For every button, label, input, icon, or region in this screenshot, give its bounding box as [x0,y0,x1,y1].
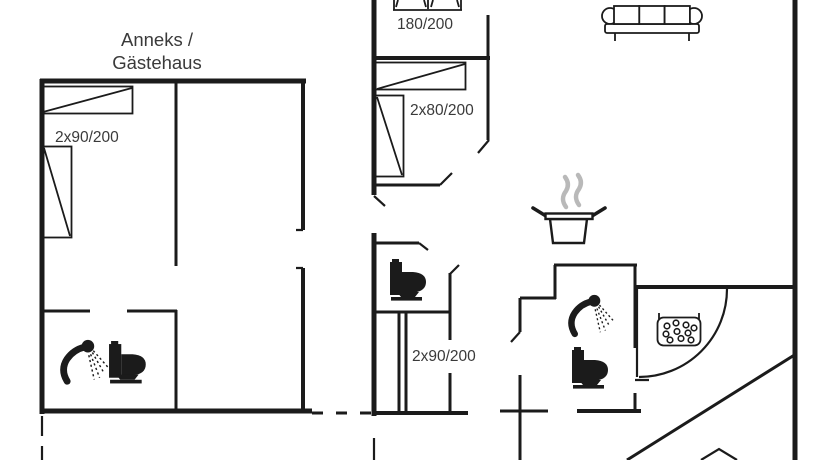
bed-size-label-twin: 2x80/200 [410,102,474,119]
bed-size-label-middle: 2x90/200 [412,348,476,365]
cooking-pot-icon [533,175,605,243]
shower-icon [64,340,108,381]
main-door-jambs [374,140,649,380]
chevron-shape [701,449,737,460]
toilet-icon [390,259,426,301]
bed-symbol [393,0,462,10]
bed-size-label-double: 180/200 [397,16,453,33]
floor-plan-drawing: Anneks / Gästehaus 2x90/200 180/200 2x80… [0,0,834,460]
annex-title-line1: Anneks / [121,29,194,50]
annex-title-line2: Gästehaus [112,52,201,73]
steam-icon [563,175,581,207]
annex-door-jambs [296,230,303,268]
bed-size-label-annex: 2x90/200 [55,129,119,146]
floor-plan-canvas: Anneks / Gästehaus 2x90/200 180/200 2x80… [0,0,834,460]
door-swing-arc [639,289,727,377]
main-house [312,0,796,460]
toilet-icon [572,347,608,389]
toilet-icon [109,341,146,383]
bed-symbol [43,87,133,238]
shower-icon [571,295,613,334]
bed-symbol [376,63,466,177]
sauna-stones-icon [658,313,701,346]
sofa-icon [602,6,702,41]
